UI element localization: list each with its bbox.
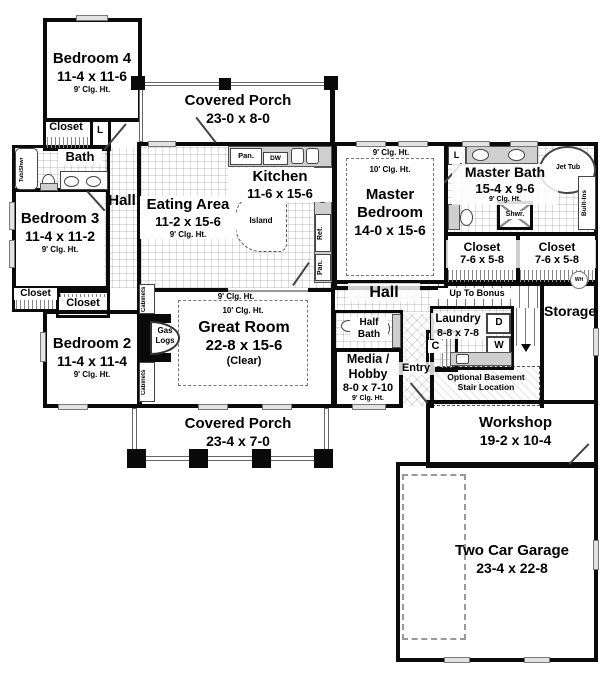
window bbox=[462, 141, 490, 147]
window bbox=[198, 404, 228, 410]
porch-top-label: Covered Porch 23-0 x 8-0 bbox=[158, 92, 318, 127]
vanity-sink bbox=[64, 176, 79, 187]
up-to-bonus-label: Up To Bonus bbox=[438, 288, 516, 299]
storage-left-wall bbox=[540, 280, 544, 408]
half-bath-wall-cab bbox=[392, 314, 401, 348]
stairs-lower-run bbox=[516, 308, 542, 346]
gas-logs-line1: Gas bbox=[151, 326, 179, 336]
room-name: Bedroom bbox=[340, 204, 440, 222]
closet-rod-b3l bbox=[16, 299, 56, 309]
window bbox=[524, 657, 550, 663]
toilet-tank-bath bbox=[40, 183, 58, 191]
room-dims: 14-0 x 15-6 bbox=[340, 222, 440, 239]
sink-basin bbox=[306, 148, 319, 164]
closet-rod-ml bbox=[448, 270, 516, 282]
half-bath-label: Half Bath bbox=[350, 317, 388, 341]
opt-basement-line2: Stair Location bbox=[434, 382, 538, 392]
eating-area-label: Eating Area 11-2 x 15-6 9' Clg. Ht. bbox=[140, 196, 236, 239]
linen-b4-label: L bbox=[91, 125, 109, 137]
room-name: Workshop bbox=[448, 414, 583, 432]
vanity-sink bbox=[86, 176, 101, 187]
porch-top-left-edge bbox=[139, 84, 143, 142]
porch-column bbox=[189, 449, 208, 468]
toilet-master bbox=[460, 209, 473, 226]
window bbox=[356, 141, 386, 147]
window bbox=[76, 15, 108, 21]
greatroom-ceiling-inner: 10' Clg. Ht. bbox=[178, 306, 308, 316]
master-bath-label: Master Bath 15-4 x 9-6 9' Clg. Ht. bbox=[452, 164, 558, 205]
room-name: Closet bbox=[518, 240, 596, 254]
room-ceiling: 9' Clg. Ht. bbox=[14, 245, 106, 255]
entry-label: Entry bbox=[397, 362, 435, 375]
laundry-label: Laundry 8-8 x 7-8 bbox=[431, 313, 485, 339]
room-dims: 23-4 x 22-8 bbox=[432, 560, 592, 577]
room-dims: 15-4 x 9-6 bbox=[452, 181, 558, 197]
closet-b4-label: Closet bbox=[44, 121, 88, 134]
bedroom4-label: Bedroom 4 11-4 x 11-6 9' Clg. Ht. bbox=[48, 50, 136, 94]
room-ceiling: 9' Clg. Ht. bbox=[140, 230, 236, 240]
porch-top-column bbox=[324, 76, 338, 90]
gas-logs-line2: Logs bbox=[151, 336, 179, 346]
porch-top-right-wall bbox=[330, 82, 335, 144]
room-ceiling: 9' Clg. Ht. bbox=[452, 196, 558, 204]
garage-label: Two Car Garage 23-4 x 22-8 bbox=[432, 542, 592, 577]
shower-label: Shwr. bbox=[500, 211, 530, 219]
room-name: Two Car Garage bbox=[432, 542, 592, 560]
room-name: Bedroom 4 bbox=[48, 50, 136, 68]
greatroom-ceiling-outer: 9' Clg. Ht. bbox=[142, 292, 330, 302]
dishwasher-label: DW bbox=[263, 155, 288, 163]
hall-left-floor bbox=[105, 148, 139, 288]
sink-basin bbox=[291, 148, 304, 164]
room-name: Covered Porch bbox=[158, 92, 318, 110]
laundry-sink bbox=[456, 354, 469, 364]
room-dims: 11-4 x 11-4 bbox=[46, 353, 138, 370]
window bbox=[148, 141, 176, 147]
toilet-tank-master bbox=[448, 204, 460, 230]
stairs-down-arrow-icon bbox=[521, 344, 531, 352]
cabinets-lower-label: Cabinets bbox=[141, 365, 153, 400]
pantry-side-label: Pan. bbox=[317, 256, 329, 279]
room-name: Kitchen bbox=[228, 168, 332, 186]
room-ceiling: 9' Clg. Ht. bbox=[46, 370, 138, 380]
half-bath-line1: Half bbox=[350, 317, 388, 329]
room-dims: 8-0 x 7-10 bbox=[336, 382, 400, 395]
room-dims: 11-4 x 11-6 bbox=[48, 68, 136, 85]
closet-b3-left-label: Closet bbox=[14, 288, 57, 300]
window bbox=[593, 540, 599, 570]
window bbox=[58, 404, 88, 410]
storage-label: Storage bbox=[544, 303, 596, 320]
room-name: Master bbox=[340, 186, 440, 204]
window bbox=[262, 404, 292, 410]
room-ceiling: 9' Clg. Ht. bbox=[336, 395, 400, 403]
tub-shwr-label: Tub/Shwr bbox=[19, 152, 33, 188]
hall-center-label: Hall bbox=[348, 283, 420, 302]
porch-column bbox=[127, 449, 146, 468]
room-dims: 23-0 x 8-0 bbox=[158, 110, 318, 127]
bath-label: Bath bbox=[58, 149, 102, 165]
opt-basement-line1: Optional Basement bbox=[434, 372, 538, 382]
water-heater-label: WH bbox=[570, 277, 588, 283]
porch-column bbox=[252, 449, 271, 468]
hall-left-label: Hall bbox=[102, 192, 142, 210]
refrigerator-label: Ref. bbox=[317, 218, 329, 248]
room-note: (Clear) bbox=[158, 355, 330, 368]
room-dims: 23-4 x 7-0 bbox=[148, 433, 328, 450]
coat-closet-label: C bbox=[428, 340, 443, 353]
closet-master-right-label: Closet 7-6 x 5-8 bbox=[518, 240, 596, 268]
master-ceiling-inner: 10' Clg. Ht. bbox=[346, 165, 434, 175]
washer-label: W bbox=[489, 340, 509, 352]
room-name: Closet bbox=[446, 240, 518, 254]
room-dims: 11-4 x 11-2 bbox=[14, 228, 106, 245]
master-ceiling-outer: 9' Clg. Ht. bbox=[338, 148, 444, 158]
room-name: Bedroom 2 bbox=[46, 335, 138, 353]
porch-top-edge bbox=[142, 82, 332, 86]
room-name: Media / bbox=[336, 352, 400, 367]
cabinets-upper-label: Cabinets bbox=[141, 287, 153, 312]
window bbox=[444, 657, 470, 663]
window bbox=[593, 328, 599, 356]
room-name: Great Room bbox=[158, 318, 330, 337]
bedroom3-label: Bedroom 3 11-4 x 11-2 9' Clg. Ht. bbox=[14, 210, 106, 254]
linen-master-label: L bbox=[449, 150, 464, 161]
closet-b3-right-label: Closet bbox=[59, 297, 107, 310]
room-dims: 22-8 x 15-6 bbox=[158, 337, 330, 355]
kitchen-label: Kitchen 11-6 x 15-6 bbox=[228, 168, 332, 202]
room-dims: 11-6 x 15-6 bbox=[228, 186, 332, 202]
window bbox=[398, 141, 428, 147]
porch-bottom-front-rail bbox=[134, 456, 328, 461]
room-name: Covered Porch bbox=[148, 415, 328, 433]
room-name: Bedroom 3 bbox=[14, 210, 106, 228]
pantry-top-label: Pan. bbox=[230, 151, 262, 160]
room-name: Hobby bbox=[336, 367, 400, 382]
vanity-sink bbox=[472, 149, 489, 161]
porch-top-column bbox=[219, 78, 231, 90]
gas-logs-label: Gas Logs bbox=[151, 326, 179, 345]
room-name: Eating Area bbox=[140, 196, 236, 214]
half-bath-line2: Bath bbox=[350, 329, 388, 341]
room-dims: 7-6 x 5-8 bbox=[446, 254, 518, 267]
floor-plan: Bedroom 4 11-4 x 11-6 9' Clg. Ht. Closet… bbox=[0, 0, 600, 675]
workshop-label: Workshop 19-2 x 10-4 bbox=[448, 414, 583, 449]
closet-master-left-label: Closet 7-6 x 5-8 bbox=[446, 240, 518, 268]
room-dims: 11-2 x 15-6 bbox=[140, 214, 236, 230]
window bbox=[352, 404, 386, 410]
porch-bottom-label: Covered Porch 23-4 x 7-0 bbox=[148, 415, 328, 450]
room-ceiling: 9' Clg. Ht. bbox=[48, 85, 136, 95]
jet-tub-label: Jet Tub bbox=[553, 164, 583, 172]
closet-rod-b4 bbox=[47, 137, 89, 148]
great-room-label: Great Room 22-8 x 15-6 (Clear) bbox=[158, 318, 330, 368]
vanity-sink bbox=[508, 149, 525, 161]
built-ins-label: Built-Ins bbox=[581, 180, 593, 226]
room-name: Laundry bbox=[431, 313, 485, 327]
room-name: Master Bath bbox=[452, 164, 558, 181]
room-dims: 8-8 x 7-8 bbox=[431, 327, 485, 340]
opt-basement-label: Optional Basement Stair Location bbox=[434, 372, 538, 392]
window bbox=[510, 141, 538, 147]
bedroom2-label: Bedroom 2 11-4 x 11-4 9' Clg. Ht. bbox=[46, 335, 138, 379]
room-dims: 19-2 x 10-4 bbox=[448, 432, 583, 449]
porch-column bbox=[314, 449, 333, 468]
dryer-label: D bbox=[489, 317, 509, 329]
media-hobby-label: Media / Hobby 8-0 x 7-10 9' Clg. Ht. bbox=[336, 352, 400, 404]
island-label: Island bbox=[240, 216, 282, 226]
porch-bottom-left-rail bbox=[132, 408, 137, 454]
room-dims: 7-6 x 5-8 bbox=[518, 254, 596, 267]
master-bedroom-label: Master Bedroom 14-0 x 15-6 bbox=[340, 186, 440, 239]
